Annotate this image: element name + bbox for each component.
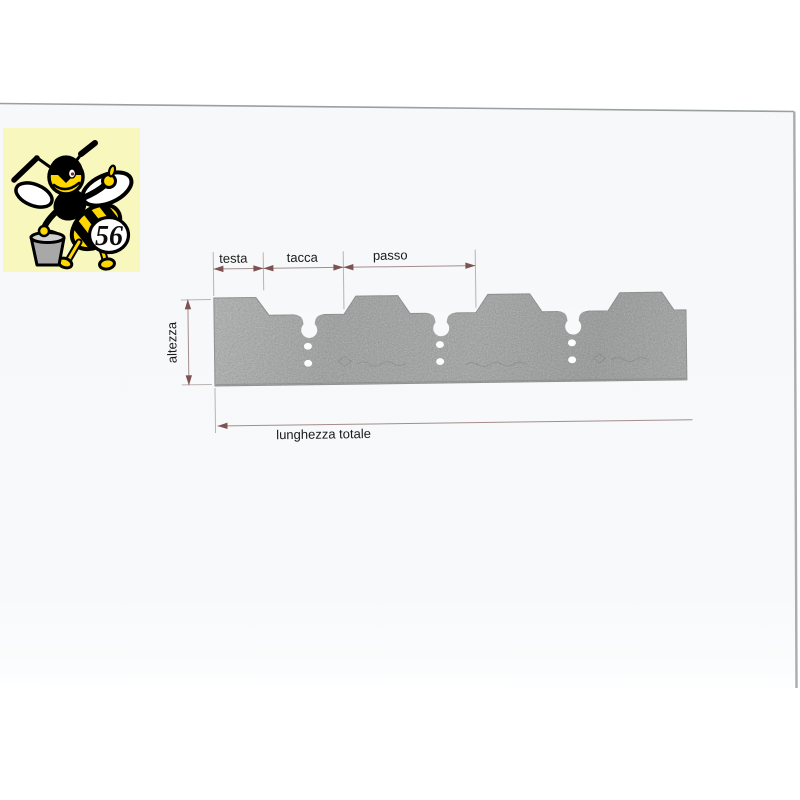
- scanned-document-page: 56: [0, 0, 800, 800]
- label-tacca: tacca: [287, 250, 319, 265]
- label-altezza: altezza: [164, 321, 180, 363]
- logo-number: 56: [95, 221, 123, 252]
- bee-logo: 56: [3, 128, 140, 272]
- bee-head-icon: [49, 155, 83, 194]
- label-testa: testa: [219, 251, 248, 266]
- label-passo: passo: [373, 247, 408, 262]
- bee-left-hand: [39, 226, 49, 236]
- logo-number-badge: 56: [90, 218, 129, 253]
- label-lunghezza-totale: lunghezza totale: [276, 426, 371, 442]
